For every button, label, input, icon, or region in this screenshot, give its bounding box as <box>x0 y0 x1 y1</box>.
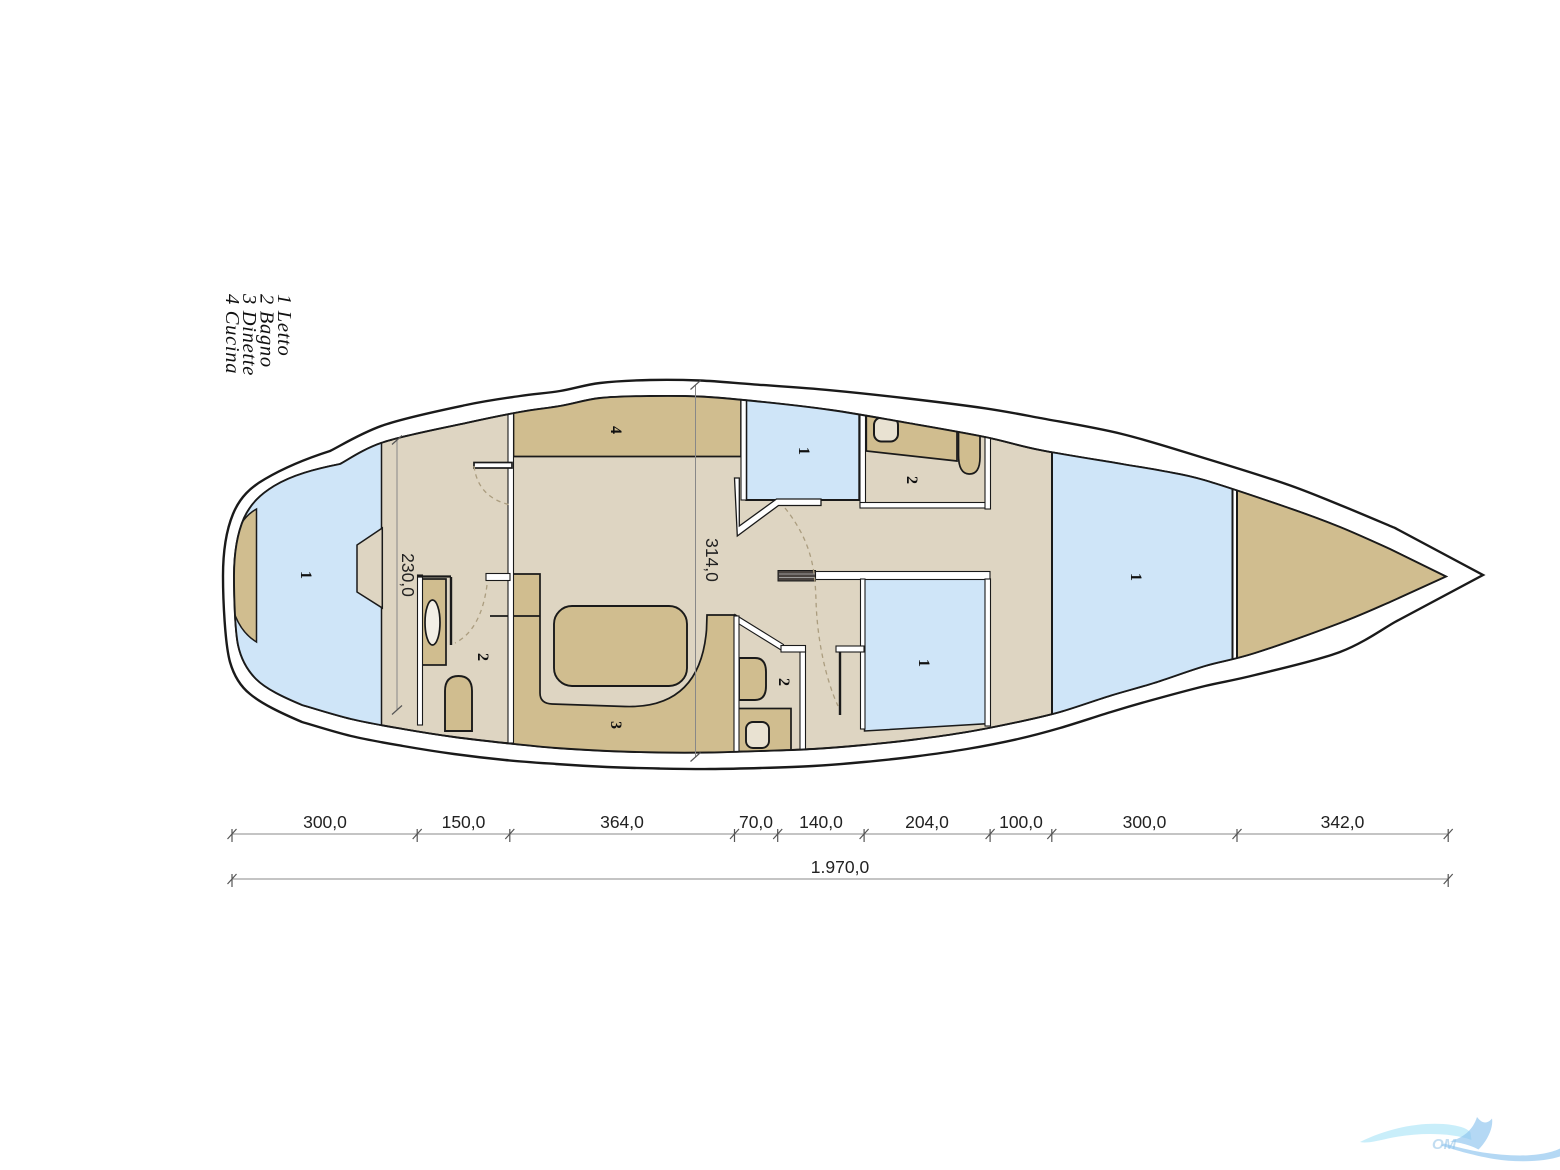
svg-text:100,0: 100,0 <box>999 812 1043 832</box>
svg-text:4 Cucina: 4 Cucina <box>221 294 243 374</box>
svg-text:2: 2 <box>903 476 920 484</box>
svg-text:230,0: 230,0 <box>398 553 418 597</box>
svg-text:300,0: 300,0 <box>1123 812 1167 832</box>
svg-text:1: 1 <box>297 571 314 579</box>
svg-text:342,0: 342,0 <box>1321 812 1365 832</box>
svg-text:3: 3 <box>607 721 624 729</box>
svg-text:4: 4 <box>607 426 624 434</box>
svg-text:150,0: 150,0 <box>442 812 486 832</box>
svg-text:1: 1 <box>915 659 932 667</box>
svg-text:140,0: 140,0 <box>799 812 843 832</box>
svg-text:314,0: 314,0 <box>702 538 722 582</box>
svg-text:364,0: 364,0 <box>600 812 644 832</box>
svg-text:204,0: 204,0 <box>905 812 949 832</box>
svg-text:2: 2 <box>474 653 491 661</box>
svg-text:300,0: 300,0 <box>303 812 347 832</box>
svg-text:1.970,0: 1.970,0 <box>811 857 870 877</box>
svg-text:1: 1 <box>795 447 812 455</box>
svg-text:2: 2 <box>775 678 792 686</box>
svg-text:70,0: 70,0 <box>739 812 773 832</box>
svg-text:1: 1 <box>1127 573 1144 581</box>
